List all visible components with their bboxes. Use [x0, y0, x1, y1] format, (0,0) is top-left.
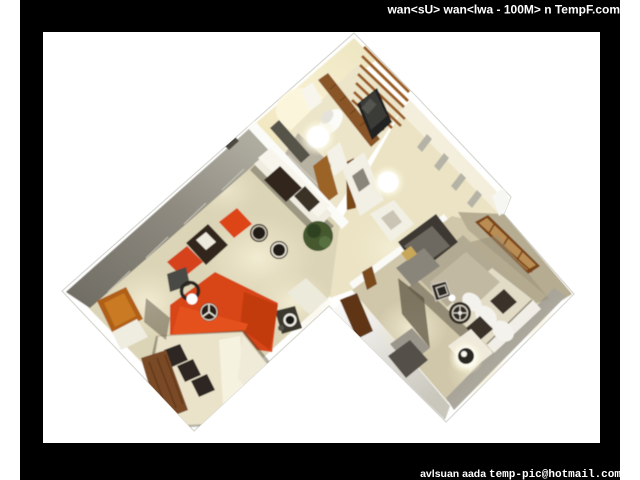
svg-text:wan<sU> wan<lwa - 100M> n Temp: wan<sU> wan<lwa - 100M> n TempF.com: [386, 3, 620, 17]
svg-text:avlsuan aada temp-pic@hotmail.: avlsuan aada temp-pic@hotmail.com: [420, 468, 621, 480]
